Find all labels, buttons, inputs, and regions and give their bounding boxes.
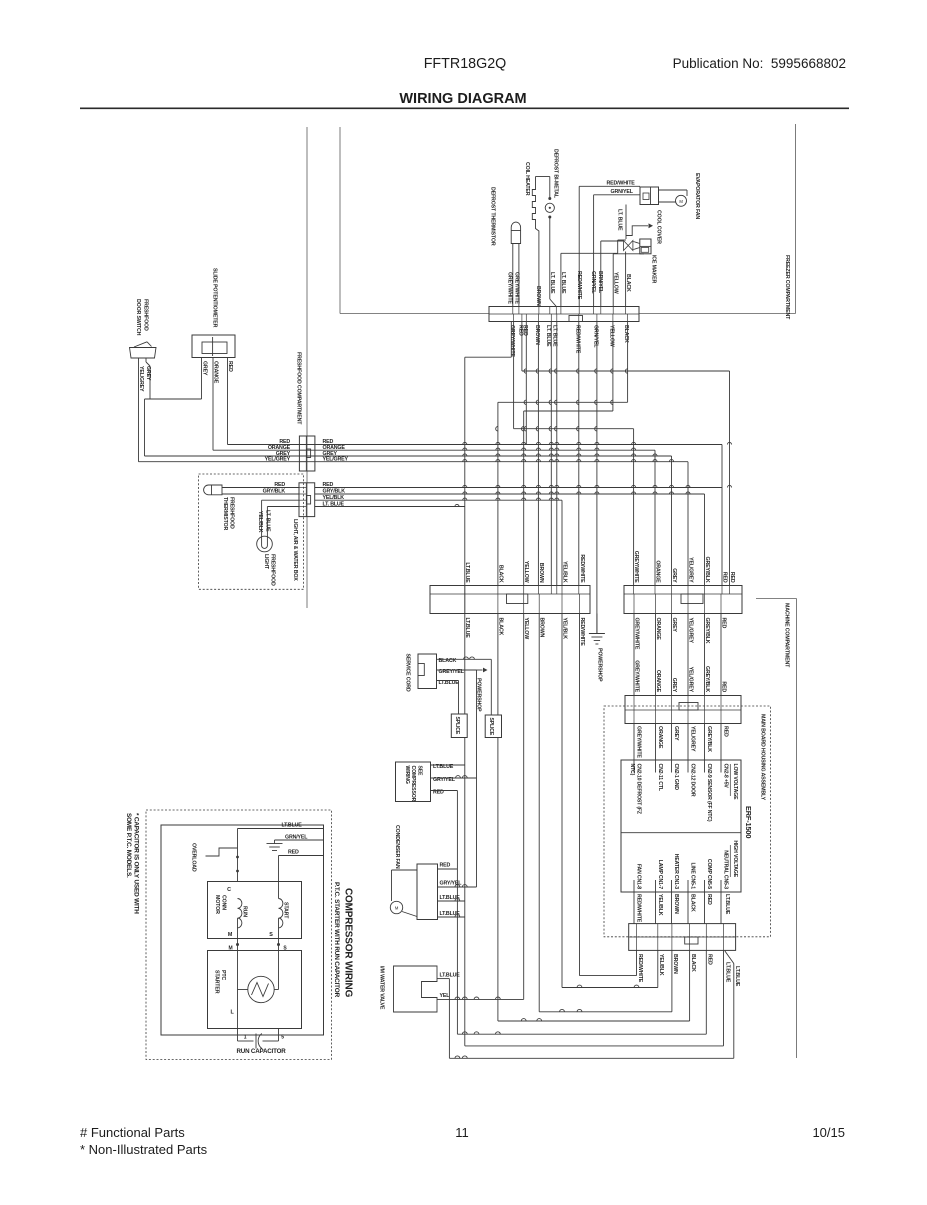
- svg-text:YEL/BLK: YEL/BLK: [658, 954, 664, 976]
- svg-text:GREY: GREY: [201, 361, 207, 376]
- svg-text:YEL/BLK: YEL/BLK: [561, 561, 567, 583]
- svg-text:Publication No: 5995668802: Publication No: 5995668802: [673, 56, 846, 71]
- svg-text:11: 11: [455, 1125, 469, 1140]
- svg-text:LT. BLUE: LT. BLUE: [616, 209, 622, 231]
- svg-text:LIGHT, AIR & WATER BOX: LIGHT, AIR & WATER BOX: [292, 519, 298, 581]
- svg-text:ORANGE: ORANGE: [655, 670, 661, 693]
- svg-text:WIRING DIAGRAM: WIRING DIAGRAM: [399, 91, 526, 107]
- svg-text:HIGH VOLTAGE: HIGH VOLTAGE: [732, 840, 738, 877]
- svg-text:RED/WHITE: RED/WHITE: [637, 954, 643, 983]
- svg-text:GRN/YEL: GRN/YEL: [285, 834, 308, 840]
- svg-text:COMPRESSOR WIRING: COMPRESSOR WIRING: [343, 888, 354, 998]
- svg-text:LAMP CN1-7: LAMP CN1-7: [657, 860, 663, 890]
- svg-text:LT.BLUE: LT.BLUE: [725, 962, 731, 983]
- svg-text:GREY/WHITE: GREY/WHITE: [633, 660, 639, 692]
- svg-text:GREY/WHITE: GREY/WHITE: [633, 551, 639, 583]
- svg-text:GRN/YEL: GRN/YEL: [590, 271, 596, 294]
- svg-text:RED/WHITE: RED/WHITE: [574, 325, 580, 354]
- svg-text:GREY/WHITE: GREY/WHITE: [507, 272, 513, 304]
- svg-text:YEL/GREY: YEL/GREY: [687, 557, 693, 583]
- svg-text:ORANGE: ORANGE: [654, 560, 660, 583]
- svg-text:YEL: YEL: [440, 993, 451, 999]
- svg-text:BLACK: BLACK: [690, 954, 696, 972]
- svg-text:HEATER CN1-3: HEATER CN1-3: [673, 854, 679, 890]
- svg-text:YEL/GREY: YEL/GREY: [265, 457, 291, 463]
- svg-text:BROWN: BROWN: [672, 954, 678, 974]
- svg-text:FRESHFOOD COMPARTMENT: FRESHFOOD COMPARTMENT: [296, 352, 302, 425]
- svg-text:5: 5: [281, 1035, 284, 1041]
- svg-text:GREY: GREY: [671, 678, 677, 693]
- svg-text:BROWN: BROWN: [534, 325, 540, 345]
- svg-text:* Non-Illustrated Parts: * Non-Illustrated Parts: [80, 1142, 208, 1157]
- svg-text:BLACK: BLACK: [690, 894, 696, 912]
- svg-text:RED: RED: [274, 482, 285, 488]
- svg-text:ICE MAKER: ICE MAKER: [650, 255, 656, 283]
- svg-text:GREY: GREY: [145, 366, 151, 381]
- svg-text:FREEZER COMPARTMENT: FREEZER COMPARTMENT: [784, 255, 790, 320]
- svg-text:DEFROST THERMISTOR: DEFROST THERMISTOR: [490, 187, 496, 246]
- svg-text:GREY/BLK: GREY/BLK: [704, 666, 710, 692]
- svg-text:CN2-9 SENSOR (FF NTC): CN2-9 SENSOR (FF NTC): [706, 764, 712, 822]
- svg-text:ORANGE: ORANGE: [657, 726, 663, 749]
- svg-text:S: S: [269, 932, 273, 938]
- svg-text:RED/WHITE: RED/WHITE: [579, 554, 585, 583]
- svg-text:LT. BLUE: LT. BLUE: [560, 272, 566, 294]
- svg-text:BRN/YEL: BRN/YEL: [597, 271, 603, 294]
- svg-text:OVERLOAD: OVERLOAD: [191, 843, 197, 872]
- svg-text:GREY: GREY: [673, 726, 679, 741]
- svg-text:RED/WHITE: RED/WHITE: [607, 180, 636, 186]
- svg-text:FAN CN1-8: FAN CN1-8: [636, 864, 642, 889]
- svg-text:COIL HEATER: COIL HEATER: [524, 162, 530, 196]
- svg-text:BLACK: BLACK: [439, 658, 457, 664]
- svg-text:FRESHFOODTHERMISTOR: FRESHFOODTHERMISTOR: [222, 497, 234, 530]
- svg-text:SLIDE POTENTIOMETER: SLIDE POTENTIOMETER: [212, 268, 218, 328]
- svg-text:FFTR18G2Q: FFTR18G2Q: [424, 56, 507, 72]
- svg-text:BLACK: BLACK: [497, 565, 503, 583]
- svg-text:BROWN: BROWN: [673, 894, 679, 914]
- svg-text:COOL COVER: COOL COVER: [656, 210, 662, 244]
- svg-text:GREY/WHITE: GREY/WHITE: [636, 726, 642, 758]
- svg-text:RED: RED: [722, 726, 728, 737]
- svg-text:YEL/GREY: YEL/GREY: [687, 667, 693, 693]
- svg-text:RUN CAPACITOR: RUN CAPACITOR: [237, 1048, 287, 1055]
- svg-text:I/M WATER VALVE: I/M WATER VALVE: [379, 966, 385, 1010]
- svg-text:COMP CN5-5: COMP CN5-5: [706, 859, 712, 889]
- svg-text:RED: RED: [729, 572, 735, 583]
- svg-text:MAIN BOARD HOUSING ASSEMBLY: MAIN BOARD HOUSING ASSEMBLY: [760, 714, 766, 801]
- svg-text:P.T.C. STARTER WITH RUN CAPACI: P.T.C. STARTER WITH RUN CAPACITOR: [333, 882, 340, 998]
- svg-text:RED/WHITE: RED/WHITE: [636, 894, 642, 923]
- svg-text:YEL/GREY: YEL/GREY: [323, 457, 349, 463]
- svg-text:YEL/GREY: YEL/GREY: [138, 366, 144, 392]
- svg-text:RED: RED: [522, 325, 528, 336]
- svg-text:RED/WHITE: RED/WHITE: [576, 271, 582, 300]
- svg-text:RED: RED: [288, 849, 299, 855]
- svg-text:GREY: GREY: [671, 568, 677, 583]
- svg-text:RED: RED: [440, 863, 451, 869]
- svg-text:YELLOW: YELLOW: [608, 325, 614, 347]
- svg-text:RED: RED: [707, 954, 713, 965]
- svg-text:LT.BLUE: LT.BLUE: [734, 966, 740, 987]
- svg-text:CONDENSER FAN: CONDENSER FAN: [394, 825, 400, 869]
- svg-text:START: START: [283, 902, 289, 919]
- svg-text:SPLICE: SPLICE: [488, 718, 494, 736]
- svg-text:GRN/YEL: GRN/YEL: [592, 325, 598, 348]
- svg-text:YEL/BLK: YEL/BLK: [657, 894, 663, 916]
- svg-text:BLACK: BLACK: [625, 274, 631, 292]
- svg-text:SPLICE: SPLICE: [454, 717, 460, 735]
- svg-text:LT.BLUE: LT.BLUE: [440, 895, 461, 901]
- svg-text:RED: RED: [227, 361, 233, 372]
- svg-text:RED: RED: [721, 572, 727, 583]
- svg-text:POWERSHOP: POWERSHOP: [597, 648, 603, 682]
- svg-text:LOW VOLTAGE: LOW VOLTAGE: [732, 764, 738, 801]
- svg-text:ERF-1500: ERF-1500: [744, 806, 753, 838]
- svg-text:EVAPORATOR FAN: EVAPORATOR FAN: [694, 173, 700, 219]
- svg-text:C: C: [227, 887, 231, 893]
- svg-text:LT. BLUE: LT. BLUE: [545, 325, 551, 347]
- svg-text:RED: RED: [720, 681, 726, 692]
- svg-text:LT.BLUE: LT.BLUE: [464, 562, 470, 583]
- svg-text:YEL/GREY: YEL/GREY: [690, 726, 696, 752]
- svg-text:10/15: 10/15: [812, 1125, 845, 1140]
- svg-text:YELLOW: YELLOW: [523, 561, 529, 583]
- svg-text:YEL/BLK: YEL/BLK: [257, 511, 263, 533]
- svg-text:LINE CN5-1: LINE CN5-1: [690, 863, 696, 890]
- svg-text:LT.BLUE: LT.BLUE: [440, 911, 461, 917]
- svg-text:M: M: [228, 932, 233, 938]
- svg-text:BROWN: BROWN: [538, 563, 544, 583]
- svg-text:MACHINE COMPARTMENT: MACHINE COMPARTMENT: [784, 603, 790, 668]
- svg-text:BROWN: BROWN: [535, 286, 541, 306]
- svg-text:CN2-8 +5V: CN2-8 +5V: [722, 764, 728, 789]
- svg-text:RED: RED: [706, 894, 712, 905]
- svg-text:FRESHFOODDOOR SWITCH: FRESHFOODDOOR SWITCH: [135, 299, 148, 336]
- svg-text:GREY/BLK: GREY/BLK: [704, 557, 710, 583]
- svg-text:GREY/WHITE: GREY/WHITE: [509, 325, 515, 357]
- svg-text:ORANGE: ORANGE: [213, 361, 219, 384]
- svg-text:CN2-1 GND: CN2-1 GND: [673, 764, 679, 791]
- svg-text:# Functional Parts: # Functional Parts: [80, 1125, 185, 1140]
- svg-text:CN2-11 CTL: CN2-11 CTL: [657, 764, 663, 792]
- svg-text:CN2-12 DOOR: CN2-12 DOOR: [690, 764, 696, 797]
- svg-text:NEUTRAL CN5-3: NEUTRAL CN5-3: [722, 850, 728, 889]
- svg-text:DEFROST BI-METAL: DEFROST BI-METAL: [553, 149, 559, 199]
- svg-text:GRN/YEL: GRN/YEL: [611, 189, 634, 195]
- svg-text:1: 1: [244, 1035, 247, 1041]
- svg-text:LT. BLUE: LT. BLUE: [549, 272, 555, 294]
- svg-text:RUN: RUN: [242, 906, 248, 917]
- svg-text:GREY/WHITE: GREY/WHITE: [514, 272, 520, 304]
- svg-text:LT.BLUE: LT.BLUE: [282, 822, 303, 828]
- svg-text:YELLOW: YELLOW: [613, 272, 619, 294]
- svg-text:LT.BLUE: LT.BLUE: [724, 894, 730, 915]
- svg-text:LT.BLUE: LT.BLUE: [440, 973, 461, 979]
- svg-text:SERVICE CORD: SERVICE CORD: [405, 654, 411, 692]
- svg-text:GRY/BLK: GRY/BLK: [263, 489, 286, 495]
- svg-text:GREY/BLK: GREY/BLK: [706, 726, 712, 752]
- svg-text:LT. BLUE: LT. BLUE: [265, 510, 271, 532]
